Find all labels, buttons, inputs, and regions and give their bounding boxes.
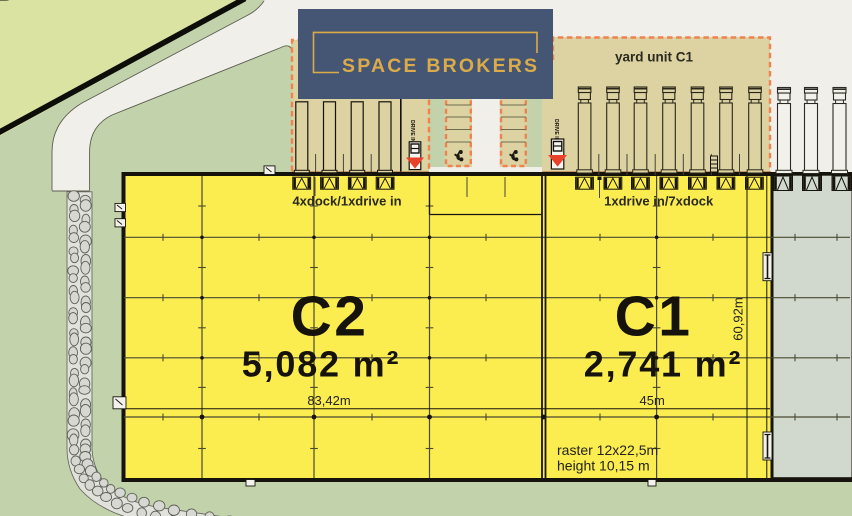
svg-text:45m: 45m <box>640 393 665 408</box>
svg-text:1xdrive in/7xdock: 1xdrive in/7xdock <box>604 193 714 208</box>
svg-text:2,741 m²: 2,741 m² <box>584 343 743 384</box>
svg-text:83,42m: 83,42m <box>307 393 350 408</box>
svg-text:C1: C1 <box>615 285 693 349</box>
svg-text:DRIVE IN: DRIVE IN <box>409 120 415 143</box>
svg-text:DRIVE IN: DRIVE IN <box>553 119 559 142</box>
svg-text:SPACE BROKERS: SPACE BROKERS <box>342 55 539 77</box>
svg-text:yard unit C1: yard unit C1 <box>615 50 694 65</box>
svg-text:4xdock/1xdrive in: 4xdock/1xdrive in <box>292 193 401 208</box>
svg-text:height 10,15 m: height 10,15 m <box>557 458 650 474</box>
svg-text:5,082 m²: 5,082 m² <box>242 343 401 384</box>
svg-text:raster 12x22,5m: raster 12x22,5m <box>557 442 658 458</box>
svg-text:C2: C2 <box>291 285 369 349</box>
svg-text:60,92m: 60,92m <box>731 297 746 340</box>
